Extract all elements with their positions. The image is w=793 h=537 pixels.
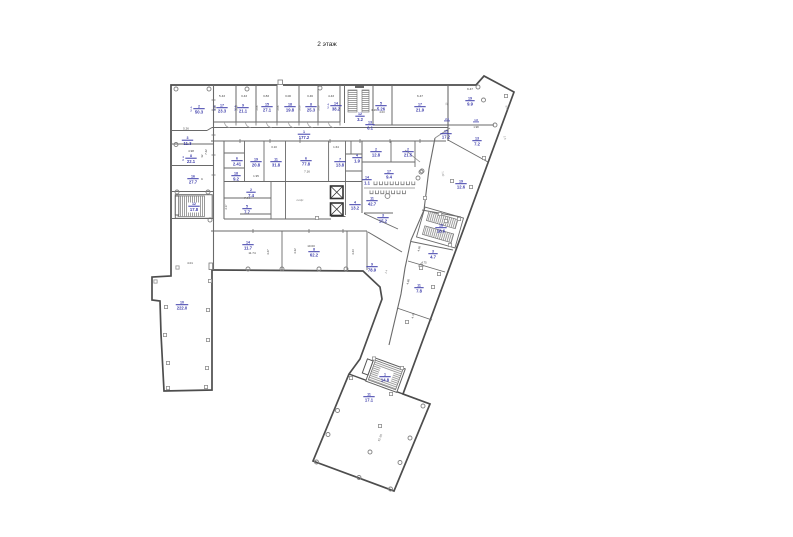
svg-text:17: 17 (387, 170, 391, 174)
svg-text:3.00: 3.00 (285, 94, 291, 98)
svg-text:18: 18 (439, 224, 443, 228)
svg-text:38.2: 38.2 (332, 106, 341, 111)
svg-text:13.2: 13.2 (351, 205, 360, 210)
svg-text:3.83: 3.83 (263, 94, 269, 98)
svg-text:9.47: 9.47 (467, 87, 473, 91)
svg-text:11.7: 11.7 (244, 245, 253, 250)
svg-text:13: 13 (368, 121, 372, 125)
svg-text:42.7: 42.7 (368, 201, 377, 206)
svg-text:27.1: 27.1 (263, 107, 272, 112)
svg-text:3.43: 3.43 (241, 94, 247, 98)
svg-text:9: 9 (242, 104, 244, 108)
svg-text:5.26: 5.26 (183, 127, 189, 131)
svg-text:22.1: 22.1 (187, 159, 196, 164)
svg-text:15: 15 (444, 130, 448, 134)
svg-text:17: 17 (220, 104, 224, 108)
svg-text:1.1: 1.1 (364, 180, 370, 185)
svg-text:4.7: 4.7 (430, 254, 436, 259)
svg-text:4.01: 4.01 (187, 261, 193, 265)
svg-text:7.42: 7.42 (204, 149, 208, 155)
svg-text:62.2: 62.2 (310, 252, 319, 257)
svg-text:11.74: 11.74 (248, 251, 256, 255)
svg-text:3: 3 (432, 250, 434, 254)
svg-text:11.3: 11.3 (184, 141, 193, 146)
svg-text:4.75: 4.75 (421, 261, 427, 265)
svg-text:5.43: 5.43 (219, 94, 225, 98)
svg-text:8: 8 (190, 154, 192, 158)
svg-text:10: 10 (180, 301, 184, 305)
svg-text:16: 16 (191, 175, 195, 179)
svg-text:14.8: 14.8 (381, 377, 390, 382)
svg-text:7.16: 7.16 (304, 170, 310, 174)
svg-text:2: 2 (407, 148, 409, 152)
svg-text:2.06: 2.06 (277, 105, 280, 110)
svg-text:7.7: 7.7 (244, 209, 250, 214)
svg-text:23.3: 23.3 (218, 108, 227, 113)
svg-text:3.46: 3.46 (307, 94, 313, 98)
svg-text:14: 14 (334, 102, 338, 106)
svg-text:1.95: 1.95 (253, 174, 259, 178)
svg-text:3: 3 (382, 214, 384, 218)
svg-text:1.8: 1.8 (474, 118, 478, 122)
svg-text:5.26: 5.26 (377, 106, 386, 111)
svg-text:7: 7 (339, 158, 341, 162)
svg-text:лифт: лифт (296, 198, 304, 202)
svg-text:1.9: 1.9 (354, 158, 360, 163)
svg-text:2: 2 (375, 148, 377, 152)
svg-text:1: 1 (384, 373, 386, 377)
svg-text:12.8: 12.8 (372, 152, 381, 157)
svg-text:8: 8 (310, 103, 312, 107)
svg-text:4.43: 4.43 (328, 94, 334, 98)
svg-text:19: 19 (254, 158, 258, 162)
svg-text:20.8: 20.8 (252, 162, 261, 167)
svg-text:2.4: 2.4 (445, 117, 449, 121)
svg-text:19.8: 19.8 (286, 107, 295, 112)
svg-text:9.4: 9.4 (386, 174, 392, 179)
svg-text:2.17: 2.17 (224, 204, 228, 210)
svg-text:6.47: 6.47 (417, 94, 423, 98)
svg-text:2.41: 2.41 (233, 161, 242, 166)
svg-text:18: 18 (288, 103, 292, 107)
svg-text:7.2: 7.2 (474, 141, 480, 146)
svg-text:2: 2 (198, 105, 200, 109)
svg-text:19: 19 (468, 97, 472, 101)
svg-text:4.98: 4.98 (188, 149, 194, 153)
svg-text:14: 14 (365, 176, 369, 180)
svg-text:3: 3 (187, 136, 189, 140)
svg-text:15: 15 (265, 103, 269, 107)
svg-text:2: 2 (250, 188, 252, 192)
svg-text:1.98: 1.98 (473, 125, 479, 129)
svg-text:7.4: 7.4 (248, 193, 254, 198)
svg-text:2.06: 2.06 (318, 105, 321, 110)
svg-text:15.2: 15.2 (379, 218, 388, 223)
svg-text:3.2: 3.2 (357, 117, 363, 122)
svg-text:18: 18 (234, 172, 238, 176)
svg-text:78.9: 78.9 (368, 267, 377, 272)
svg-text:12.6: 12.6 (457, 184, 466, 189)
svg-text:4: 4 (356, 154, 358, 158)
svg-text:6: 6 (305, 157, 307, 161)
svg-text:4.27: 4.27 (266, 249, 270, 255)
svg-text:12: 12 (358, 112, 362, 116)
svg-text:3.10: 3.10 (271, 145, 277, 149)
svg-text:11: 11 (370, 197, 374, 201)
svg-text:12: 12 (192, 202, 196, 206)
svg-text:31.8: 31.8 (272, 162, 281, 167)
svg-text:17: 17 (418, 103, 422, 107)
svg-text:14: 14 (246, 241, 250, 245)
svg-text:222.0: 222.0 (177, 305, 188, 310)
svg-text:1: 1 (303, 130, 305, 134)
svg-text:18.6: 18.6 (437, 228, 446, 233)
svg-text:5: 5 (380, 102, 382, 106)
svg-text:21.1: 21.1 (239, 108, 248, 113)
svg-text:27.7: 27.7 (189, 179, 198, 184)
svg-text:177.2: 177.2 (299, 135, 310, 140)
svg-text:11: 11 (274, 158, 278, 162)
svg-text:13.8: 13.8 (336, 162, 345, 167)
svg-text:7.8: 7.8 (416, 288, 422, 293)
svg-text:9.2: 9.2 (233, 176, 239, 181)
svg-text:9: 9 (371, 263, 373, 267)
svg-text:21.9: 21.9 (416, 107, 425, 112)
svg-text:4.23: 4.23 (351, 249, 355, 255)
svg-text:13: 13 (475, 137, 479, 141)
svg-text:2.06: 2.06 (256, 105, 259, 110)
svg-text:4: 4 (354, 201, 356, 205)
svg-text:1.64: 1.64 (333, 145, 339, 149)
svg-text:2 этаж: 2 этаж (317, 41, 337, 48)
svg-text:11: 11 (417, 284, 421, 288)
svg-text:17.8: 17.8 (190, 207, 199, 212)
svg-text:17.2: 17.2 (442, 134, 451, 139)
svg-text:4.32: 4.32 (293, 248, 297, 254)
svg-text:17.1: 17.1 (365, 397, 374, 402)
svg-text:50.3: 50.3 (195, 109, 204, 114)
svg-text:9.9: 9.9 (467, 101, 473, 106)
svg-text:21.5: 21.5 (404, 152, 413, 157)
svg-text:11: 11 (367, 393, 371, 397)
svg-text:25.3: 25.3 (307, 107, 316, 112)
svg-text:77.8: 77.8 (302, 161, 311, 166)
svg-text:19: 19 (459, 180, 463, 184)
svg-text:2.06: 2.06 (299, 105, 302, 110)
svg-text:8: 8 (313, 248, 315, 252)
svg-text:6: 6 (236, 157, 238, 161)
svg-text:6.1: 6.1 (367, 125, 373, 130)
svg-text:5: 5 (246, 205, 248, 209)
